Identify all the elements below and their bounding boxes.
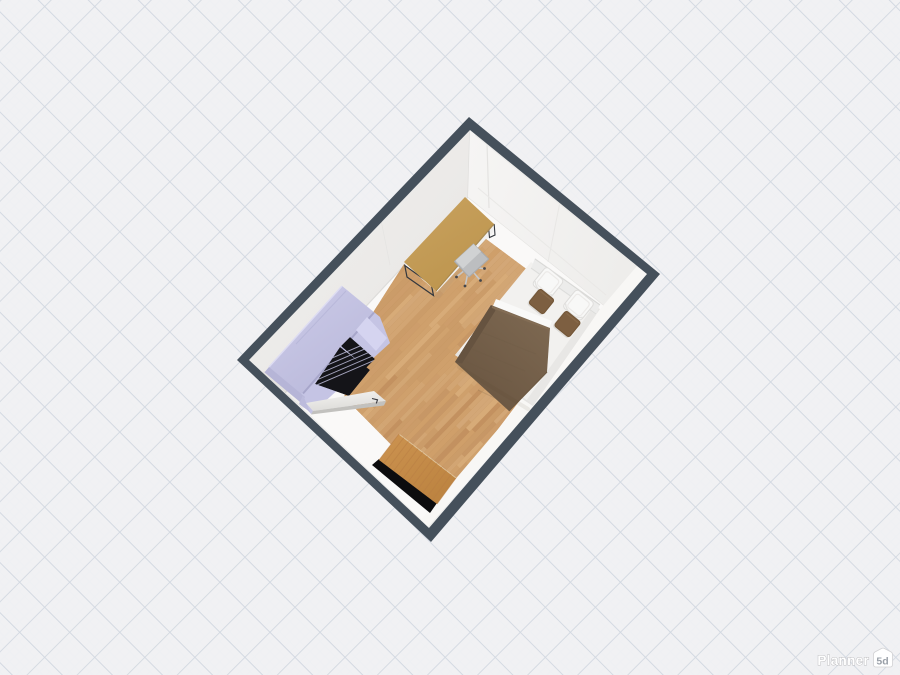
svg-text:5d: 5d [876,656,888,668]
svg-text:Planner: Planner [817,653,869,668]
